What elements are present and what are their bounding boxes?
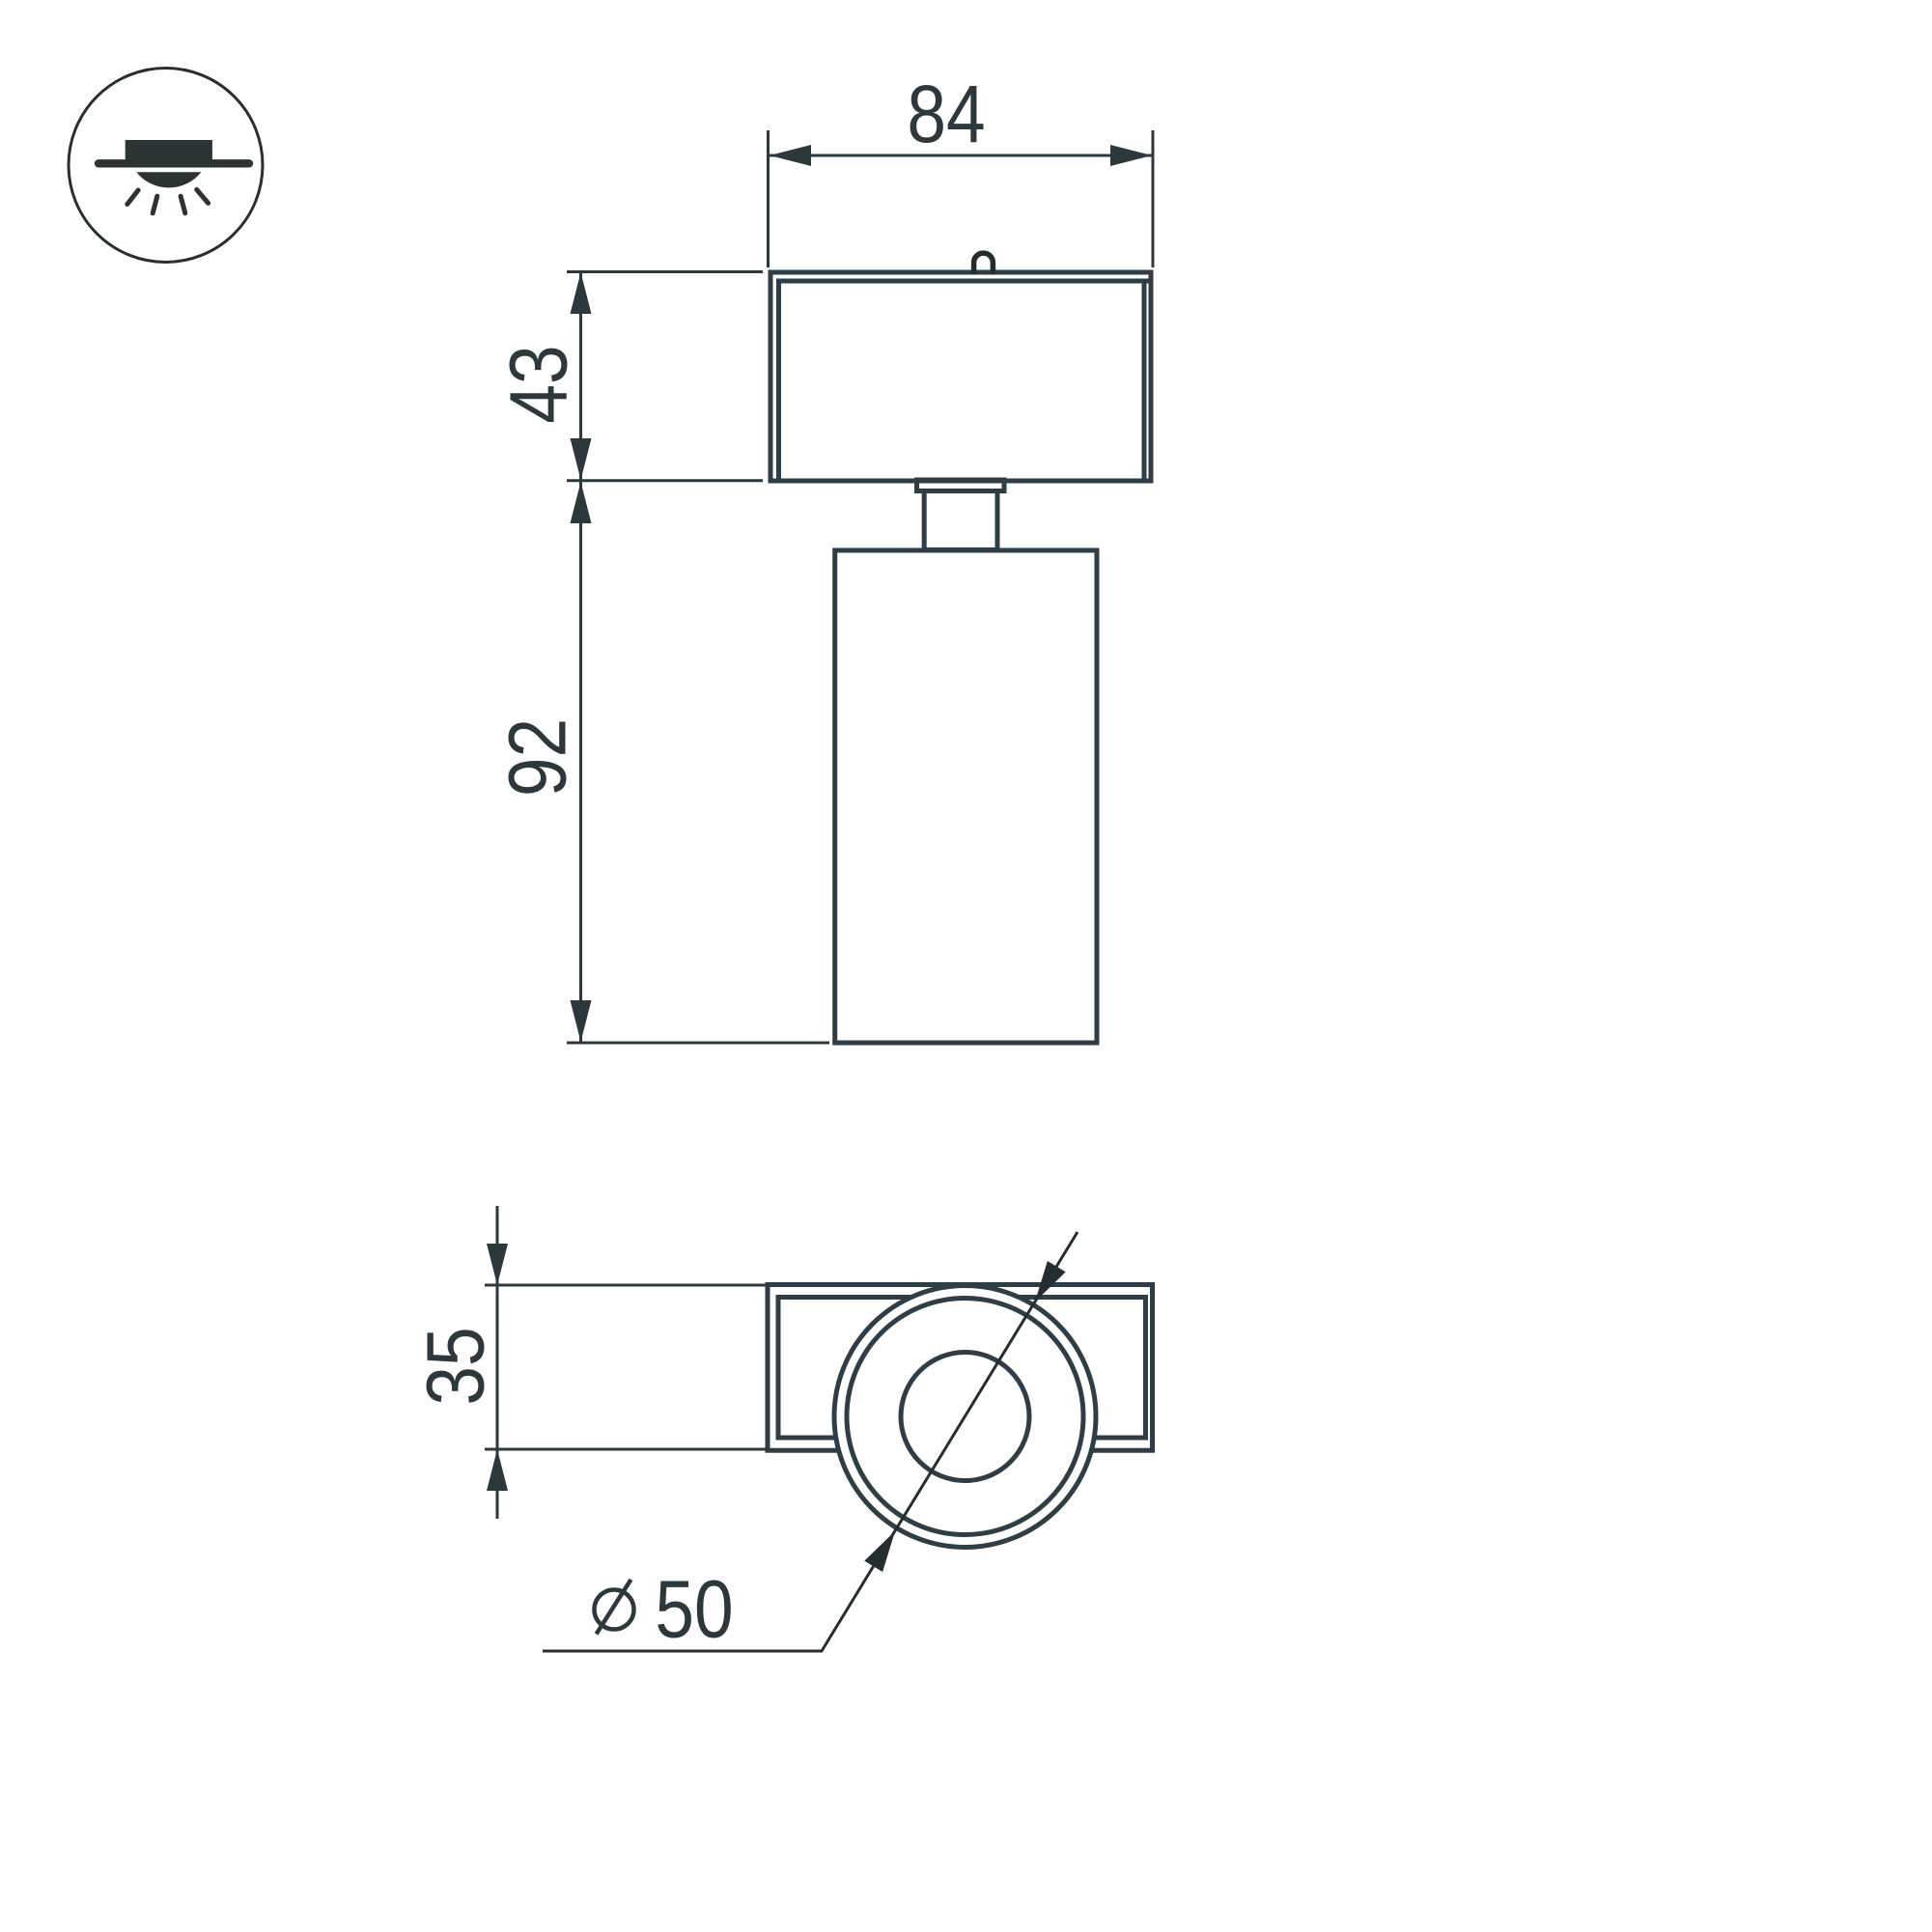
svg-text:43: 43	[493, 345, 584, 423]
svg-text:92: 92	[492, 718, 583, 797]
svg-text:50: 50	[655, 1564, 733, 1655]
svg-text:84: 84	[907, 69, 985, 159]
svg-text:35: 35	[410, 1327, 501, 1405]
